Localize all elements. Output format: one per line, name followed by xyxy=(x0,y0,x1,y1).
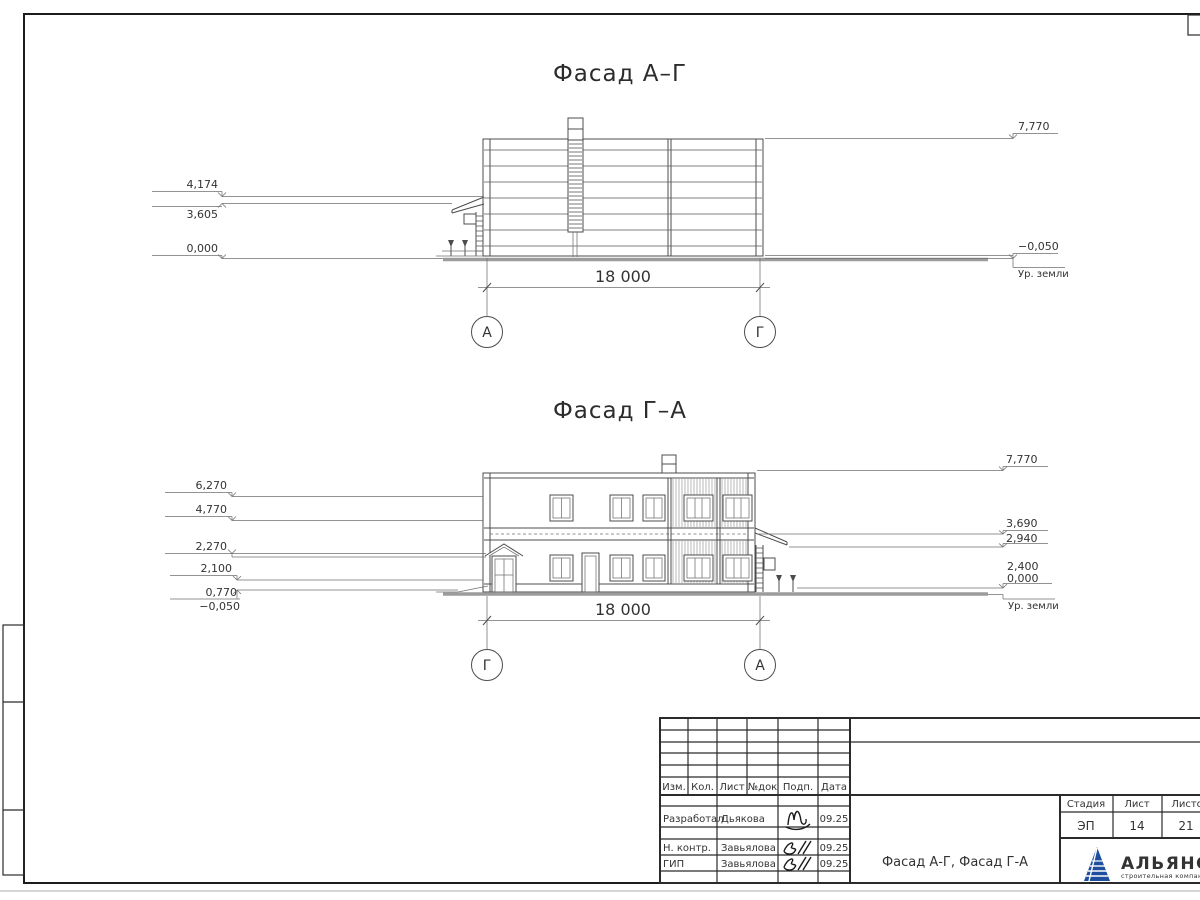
elevation-mark: 7,770 xyxy=(1018,120,1050,133)
entrance-door-right xyxy=(582,553,599,592)
facade-ga-view: Фасад Г–А xyxy=(165,398,1059,681)
row-role: Н. контр. xyxy=(663,843,711,854)
dimension-text: 18 000 xyxy=(595,267,651,286)
elevation-mark: −0,050 xyxy=(199,600,240,613)
facade-ag-view: Фасад А–Г xyxy=(152,61,1069,348)
company-subtitle: строительная компания xyxy=(1121,872,1200,880)
titleblock-rows: Разработал Дьякова 09.25 Н. контр. Завья… xyxy=(663,811,848,870)
company-name: АЛЬЯНС xyxy=(1121,854,1200,874)
facade-ag-marks-right: 7,770 −0,050 Ур. земли xyxy=(765,120,1069,280)
ground-level-label: Ур. земли xyxy=(1018,269,1069,280)
row-name: Завьялова xyxy=(721,859,776,870)
stage-label: Стадия xyxy=(1067,799,1105,810)
sheet-value: 14 xyxy=(1129,819,1144,833)
elevation-mark: 3,605 xyxy=(187,208,219,221)
stage-table: Стадия Лист Листов ЭП 14 21 xyxy=(1067,799,1200,833)
sheets-label: Листов xyxy=(1171,799,1200,810)
header-podp: Подп. xyxy=(783,782,813,793)
row-date: 09.25 xyxy=(820,843,849,854)
signature xyxy=(784,841,811,854)
elevation-mark: 0,000 xyxy=(1007,572,1039,585)
elevation-mark: 4,770 xyxy=(196,503,228,516)
row-name: Завьялова xyxy=(721,843,776,854)
axis-label-a: А xyxy=(755,658,765,674)
facade-ag-building xyxy=(436,118,988,260)
signature xyxy=(784,857,811,870)
facade-ga-marks-left: 6,270 4,770 2,270 2,100 0,770 −0,050 xyxy=(165,479,486,613)
left-margin-boxes xyxy=(3,625,24,875)
elevation-mark: 2,100 xyxy=(201,562,233,575)
axis-label-g: Г xyxy=(483,658,492,674)
elevation-mark: −0,050 xyxy=(1018,240,1059,253)
row-date: 09.25 xyxy=(820,814,849,825)
header-ndok: №док xyxy=(748,782,777,793)
facade-ga-title: Фасад Г–А xyxy=(553,398,687,424)
axis-label-a: А xyxy=(482,325,492,341)
document-title: Фасад А-Г, Фасад Г-А xyxy=(882,855,1028,870)
axis-label-g: Г xyxy=(756,325,765,341)
elevation-mark: 6,270 xyxy=(196,479,228,492)
facade-ag-dimension: 18 000 А Г xyxy=(472,258,776,348)
elevation-mark: 2,940 xyxy=(1006,532,1038,545)
titleblock-headers: Изм. Кол. Лист №док Подп. Дата xyxy=(662,782,847,793)
stage-value: ЭП xyxy=(1077,819,1094,833)
corner-box xyxy=(1188,15,1200,35)
elevation-mark: 2,270 xyxy=(196,540,228,553)
facade-ga-marks-right: 7,770 3,690 2,940 2,400 0,000 Ур. земли xyxy=(757,453,1059,612)
header-kol: Кол. xyxy=(691,782,714,793)
right-bollards xyxy=(776,575,796,592)
facade-ga-building xyxy=(436,455,988,594)
sheets-value: 21 xyxy=(1178,819,1193,833)
right-ladder xyxy=(756,545,775,592)
facade-ga-dimension: 18 000 Г А xyxy=(472,596,776,681)
elevation-mark: 0,770 xyxy=(206,586,238,599)
ground-level-label: Ур. земли xyxy=(1008,601,1059,612)
header-izm: Изм. xyxy=(662,782,686,793)
title-block: Изм. Кол. Лист №док Подп. Дата Разработа… xyxy=(660,718,1200,883)
entrance-canopy xyxy=(452,197,484,213)
elevation-mark: 3,690 xyxy=(1006,517,1038,530)
header-list: Лист xyxy=(719,782,745,793)
right-canopy xyxy=(755,528,787,545)
elevation-mark: 4,174 xyxy=(187,178,219,191)
sheet-label: Лист xyxy=(1124,799,1150,810)
elevation-mark: 7,770 xyxy=(1006,453,1038,466)
row-role: ГИП xyxy=(663,859,684,870)
side-ladder xyxy=(464,212,483,256)
row-role: Разработал xyxy=(663,814,724,825)
facade-ag-title: Фасад А–Г xyxy=(553,61,687,87)
row-name: Дьякова xyxy=(721,814,765,825)
header-data: Дата xyxy=(821,782,847,793)
facade-ag-marks-left: 4,174 3,605 0,000 xyxy=(152,178,484,259)
company-logo: АЛЬЯНС строительная компания xyxy=(1084,847,1200,881)
row-date: 09.25 xyxy=(820,859,849,870)
dimension-text: 18 000 xyxy=(595,600,651,619)
drawing-sheet: Фасад А–Г xyxy=(0,0,1200,900)
elevation-mark: 0,000 xyxy=(187,242,219,255)
